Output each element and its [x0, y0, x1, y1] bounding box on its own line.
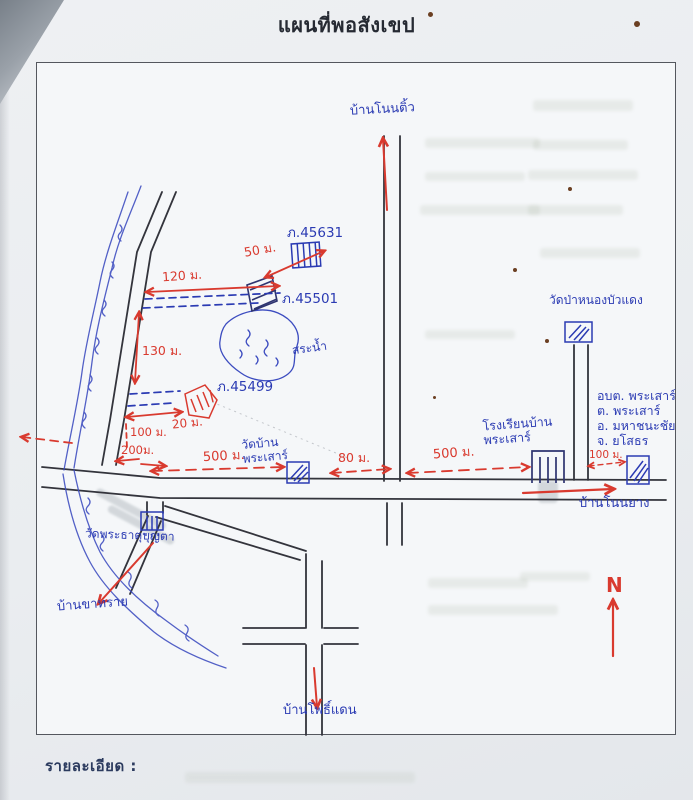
paper-blotch: [538, 481, 558, 503]
school-label: โรงเรียนบ้าน พระเสาร์: [482, 415, 554, 449]
page-title: แผนที่พอสังเขป: [0, 14, 693, 37]
bleed-through-smudge: [425, 172, 525, 181]
bleed-through-smudge: [428, 605, 558, 615]
bleed-through-smudge: [528, 205, 623, 215]
bleed-through-smudge: [428, 578, 528, 588]
bleed-through-smudge: [533, 140, 628, 150]
sao-office-line2: ต. พระเสาร์: [597, 403, 676, 418]
distance-label-130m: 130 ม.: [142, 344, 182, 358]
sao-office-address: อบต. พระเสาร์ ต. พระเสาร์ อ. มหาชนะชัย จ…: [597, 388, 676, 448]
village-label-non-yang: บ้านโนนยาง: [579, 497, 649, 512]
distance-label-80m: 80 ม.: [338, 451, 370, 465]
bleed-through-smudge: [420, 205, 540, 215]
bleed-through-smudge: [425, 330, 515, 339]
bleed-through-smudge: [540, 248, 640, 258]
bleed-through-smudge: [425, 138, 540, 148]
sao-office-line1: อบต. พระเสาร์: [597, 388, 676, 403]
distance-label-200m: 200ม.: [121, 444, 154, 457]
distance-label-500m-left: 500 ม.: [203, 449, 245, 466]
bleed-through-smudge: [533, 100, 633, 111]
dirt-speck: [568, 187, 572, 191]
bleed-through-smudge: [520, 572, 590, 581]
temple-label-wat-pa-nong-bua-daeng: วัดป่าหนองบัวแดง: [549, 294, 643, 308]
dirt-speck: [428, 12, 433, 17]
distance-label-100m-right: 100 ม.: [589, 449, 623, 461]
north-label: N: [606, 574, 623, 597]
bleed-through-smudge: [185, 772, 415, 783]
bleed-through-smudge: [528, 170, 638, 180]
dirt-speck: [433, 396, 436, 399]
map-border-frame: [36, 62, 676, 735]
village-label-pho-daen: บ้านโพธิ์แดน: [283, 704, 357, 719]
parcel-label-45501: ภ.45501: [282, 292, 338, 308]
temple-label-wat-ban-phra-sao: วัดบ้าน พระเสาร์: [241, 435, 289, 466]
scanned-sketch-map-page: แผนที่พอสังเขป: [0, 0, 693, 800]
dirt-speck: [634, 21, 640, 27]
sao-office-line3: อ. มหาชนะชัย: [597, 418, 676, 433]
distance-label-500m-right: 500 ม.: [433, 446, 476, 464]
sao-office-line4: จ. ยโสธร: [597, 433, 676, 448]
distance-label-100m-left: 100 ม.: [130, 426, 167, 439]
dirt-speck: [513, 268, 517, 272]
details-heading: รายละเอียด :: [45, 758, 137, 775]
parcel-label-45631: ภ.45631: [287, 226, 343, 242]
distance-label-120m: 120 ม.: [162, 268, 203, 285]
parcel-label-45499: ภ.45499: [217, 380, 273, 396]
dirt-speck: [545, 339, 549, 343]
